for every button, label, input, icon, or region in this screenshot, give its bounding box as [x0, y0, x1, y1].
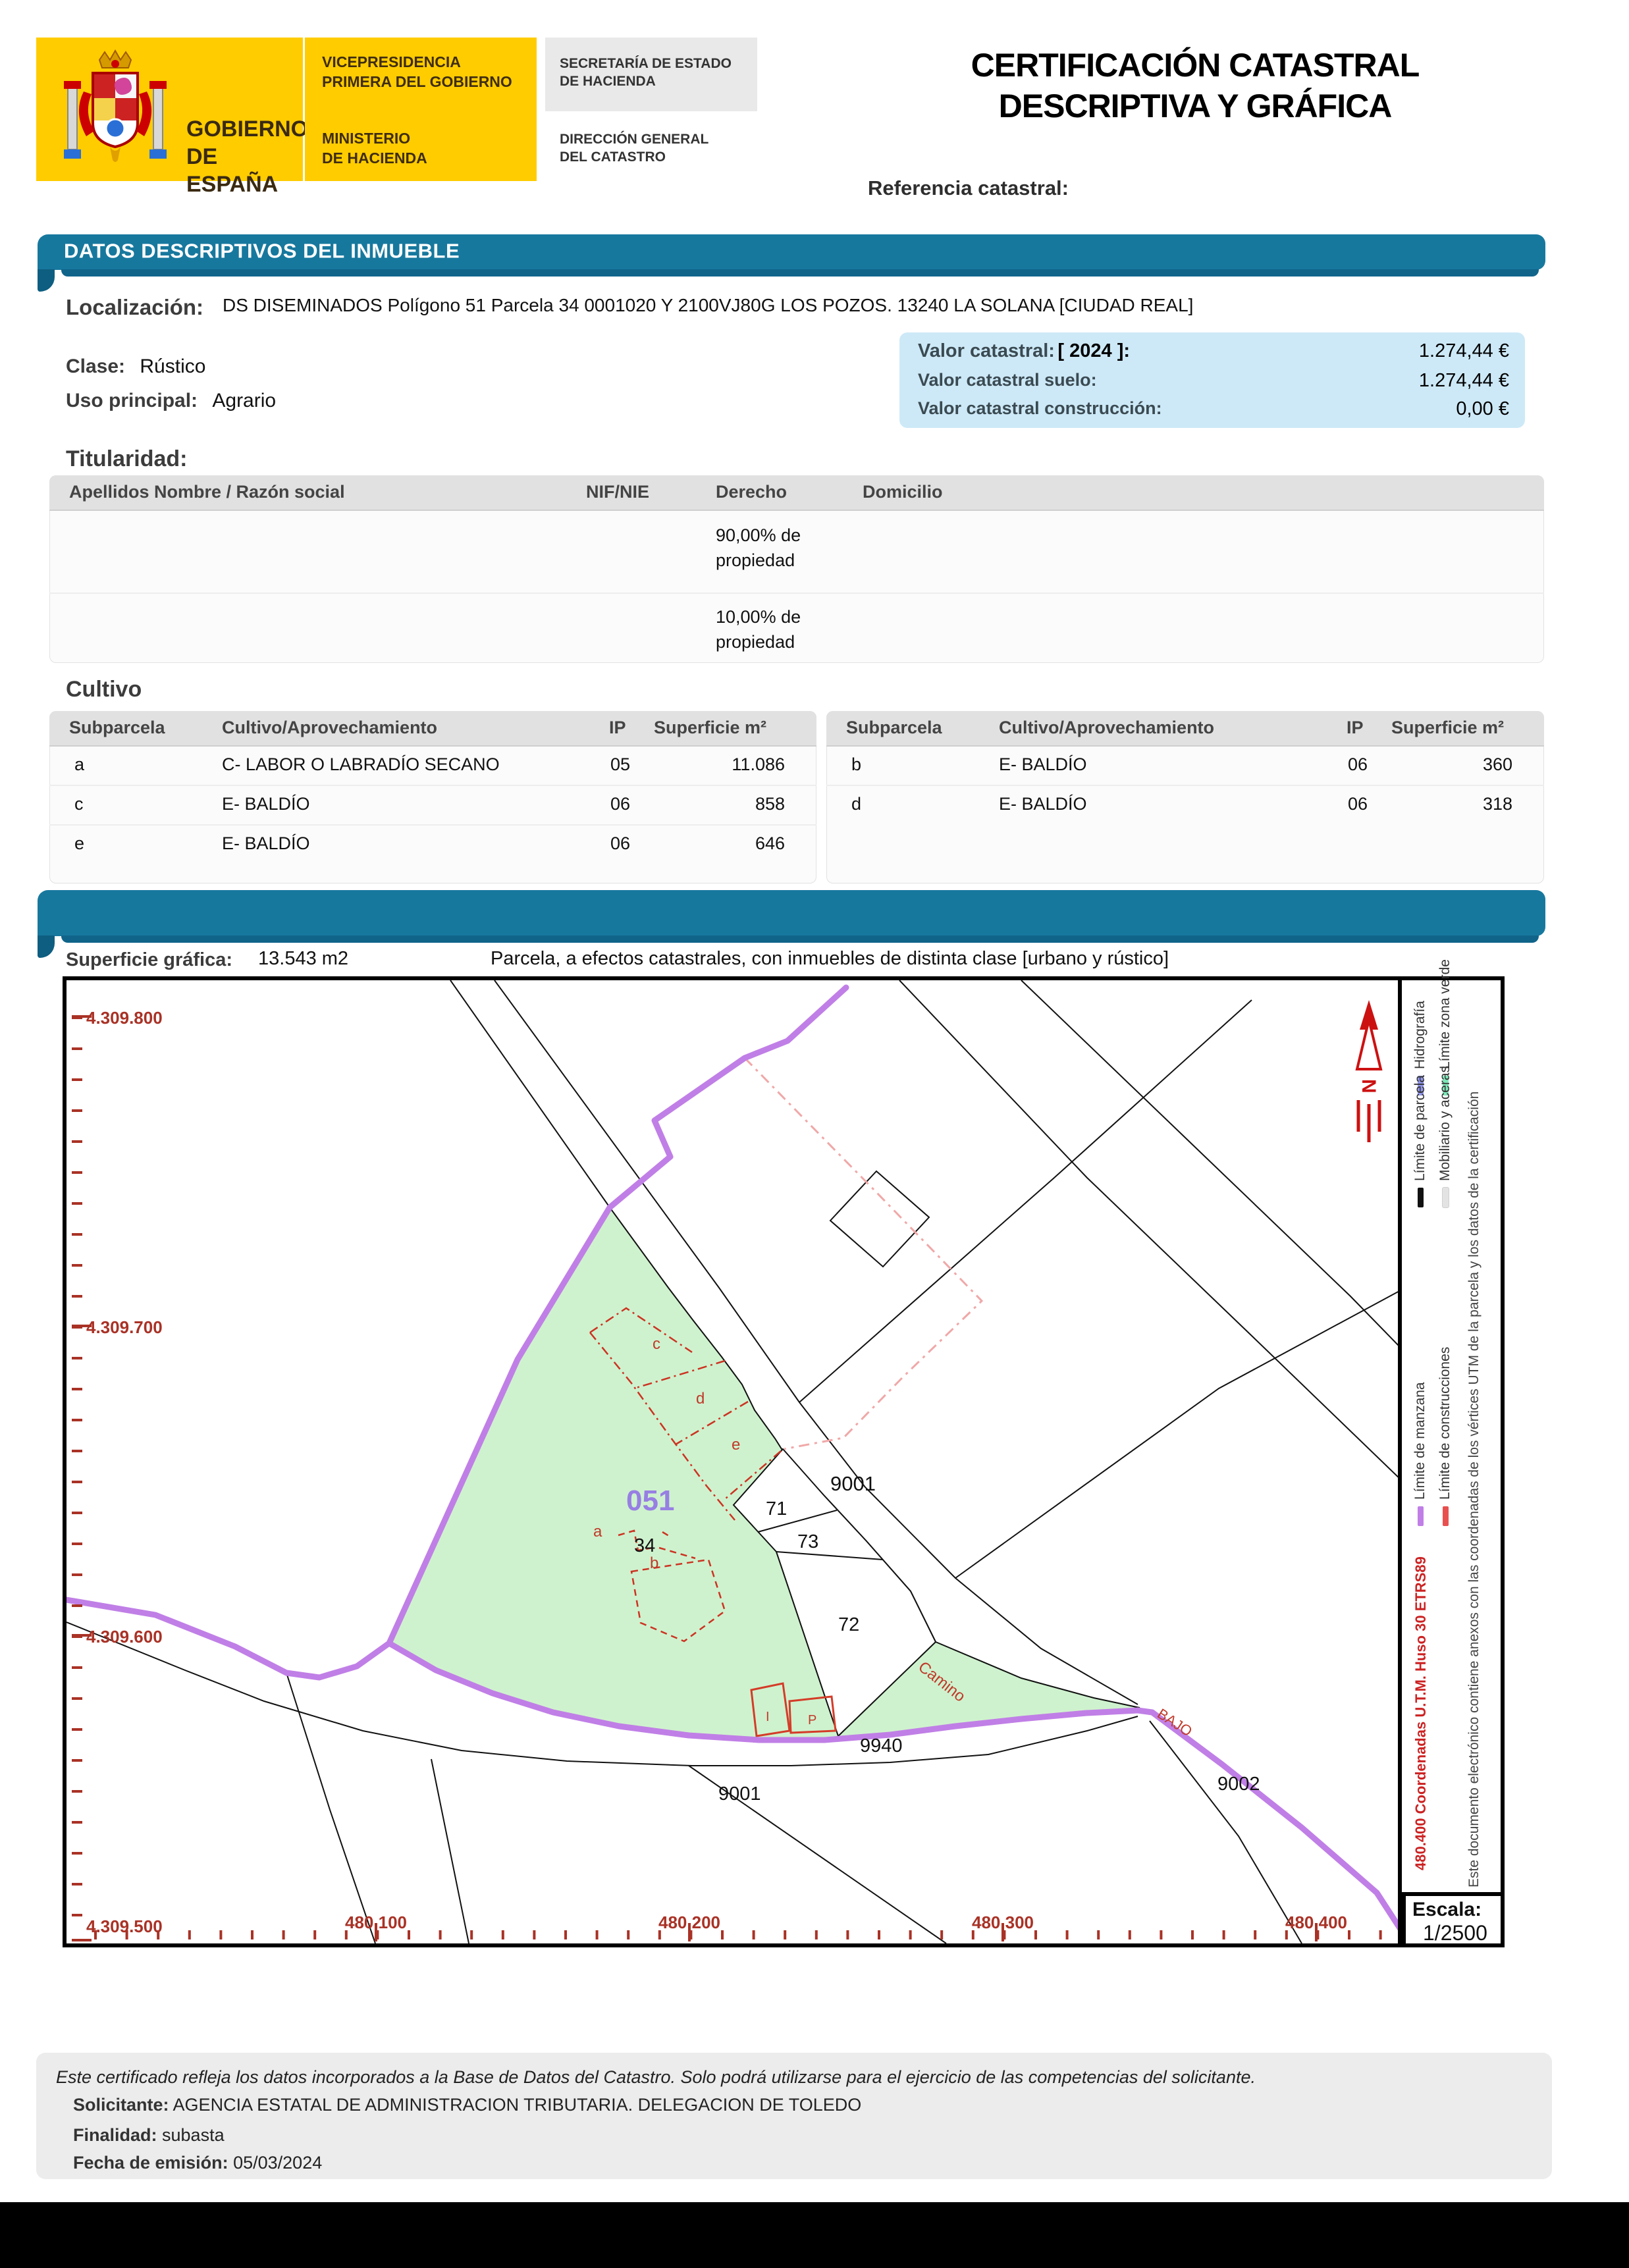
label-sub-d: d — [696, 1390, 705, 1408]
valor-value: 1.274,44 € — [1419, 340, 1509, 362]
mobiliario-swatch-icon — [1443, 1188, 1449, 1207]
label-constr-i: I — [766, 1710, 770, 1724]
col-cultivo-r: Cultivo/Aprovechamiento — [999, 718, 1214, 738]
titular-row2-derecho: 10,00% de propiedad — [716, 604, 801, 654]
secretaria-box: SECRETARÍA DE ESTADO DE HACIENDA — [545, 38, 757, 111]
col-subparcela-r: Subparcela — [846, 718, 942, 738]
legend-limite-construcciones: Límite de construcciones — [1437, 1347, 1453, 1526]
north-letter: N — [1358, 1079, 1379, 1094]
label-sub-e: e — [732, 1436, 740, 1454]
title-line2: DESCRIPTIVA Y GRÁFICA — [849, 86, 1541, 126]
legend-limite-parcela: Límite de parcela — [1412, 1075, 1428, 1207]
localizacion-value: DS DISEMINADOS Polígono 51 Parcela 34 00… — [223, 295, 1193, 316]
col-ip: IP — [609, 718, 626, 738]
zona-verde-label: Límite zona verde — [1437, 959, 1453, 1069]
gobierno-line2: DE ESPAÑA — [186, 143, 308, 198]
limite-construcciones-label: Límite de construcciones — [1437, 1347, 1453, 1500]
row1-derecho-l1: 90,00% de — [716, 523, 801, 548]
limite-parcela-swatch-icon — [1418, 1188, 1424, 1207]
certificate-page: GOBIERNO DE ESPAÑA VICEPRESIDENCIA PRIME… — [0, 0, 1629, 2268]
north-arrow-icon: N — [1357, 1000, 1381, 1142]
label-constr-p: P — [808, 1713, 816, 1727]
fecha-emision-label: Fecha de emisión: — [73, 2153, 228, 2173]
cadastral-map: 4.309.800 4.309.700 4.309.600 4.309.500 … — [63, 976, 1505, 1947]
x-label-480100: 480.100 — [345, 1912, 407, 1932]
c-r1-ip: 06 — [1348, 754, 1368, 775]
finalidad-value: subasta — [162, 2125, 225, 2145]
c-l1-cult: C- LABOR O LABRADÍO SECANO — [222, 754, 500, 775]
titularidad-table: Apellidos Nombre / Razón social NIF/NIE … — [49, 475, 1544, 663]
hidrografia-label: Hidrografía — [1412, 1001, 1428, 1069]
col-cultivo: Cultivo/Aprovechamiento — [222, 718, 437, 738]
datos-descriptivos-banner: DATOS DESCRIPTIVOS DEL INMUEBLE — [38, 234, 1545, 270]
label-72: 72 — [838, 1614, 859, 1635]
parcela-note: Parcela, a efectos catastrales, con inmu… — [491, 948, 1169, 970]
label-34: 34 — [634, 1535, 655, 1556]
clase-value: Rústico — [140, 356, 205, 377]
label-9001-bottom: 9001 — [718, 1783, 761, 1805]
c-l2-sup: 858 — [755, 794, 785, 814]
row2-derecho-l1: 10,00% de — [716, 604, 801, 629]
footer-finalidad: Finalidad: subasta — [73, 2125, 225, 2146]
superficie-grafica-label: Superficie gráfica: — [66, 949, 232, 971]
page-bottom-bar — [0, 2202, 1629, 2268]
col-superficie-r: Superficie m² — [1391, 718, 1504, 738]
limite-manzana-swatch-icon — [1418, 1506, 1424, 1526]
direccion-general-label: DIRECCIÓN GENERAL DEL CATASTRO — [560, 130, 708, 166]
y-label-4309600: 4.309.600 — [86, 1627, 163, 1647]
gobierno-line1: GOBIERNO — [186, 115, 308, 143]
mobiliario-label: Mobiliario y aceras — [1437, 1066, 1453, 1181]
finalidad-label: Finalidad: — [73, 2125, 157, 2145]
min-line2: DE HACIENDA — [322, 148, 427, 168]
spain-coat-of-arms-icon — [49, 47, 181, 172]
uso-principal-label: Uso principal: — [66, 390, 198, 411]
y-label-4309700: 4.309.700 — [86, 1317, 163, 1337]
col-nif: NIF/NIE — [586, 482, 649, 502]
ministerio-box: VICEPRESIDENCIA PRIMERA DEL GOBIERNO MIN… — [305, 38, 537, 181]
label-9940: 9940 — [860, 1735, 903, 1756]
vice-line1: VICEPRESIDENCIA — [322, 52, 512, 72]
c-l1-sup: 11.086 — [732, 754, 785, 775]
label-sub-b: b — [650, 1554, 658, 1572]
valor-row-3: Valor catastral construcción: 0,00 € — [918, 398, 1509, 419]
c-l2-sub: c — [74, 794, 84, 814]
c-r1-cult: E- BALDÍO — [999, 754, 1087, 775]
x-label-480300: 480.300 — [972, 1912, 1034, 1932]
c-l3-ip: 06 — [610, 833, 630, 854]
footer-solicitante: Solicitante: AGENCIA ESTATAL DE ADMINIST… — [73, 2095, 861, 2115]
sec-line2: DE HACIENDA — [560, 72, 732, 90]
titular-row1-derecho: 90,00% de propiedad — [716, 523, 801, 573]
valor-construccion-value: 0,00 € — [1456, 398, 1509, 420]
fecha-emision-value: 05/03/2024 — [233, 2153, 322, 2173]
vicepresidencia-label: VICEPRESIDENCIA PRIMERA DEL GOBIERNO — [322, 52, 512, 92]
gobierno-logo-box: GOBIERNO DE ESPAÑA — [36, 38, 303, 181]
limite-construcciones-swatch-icon — [1443, 1506, 1449, 1526]
row2-derecho-l2: propiedad — [716, 629, 801, 654]
solicitante-label: Solicitante: — [73, 2095, 169, 2115]
c-l3-cult: E- BALDÍO — [222, 833, 310, 854]
c-r2-ip: 06 — [1348, 794, 1368, 814]
certification-limit-line — [745, 1058, 982, 1449]
min-line1: MINISTERIO — [322, 128, 427, 148]
label-71: 71 — [766, 1498, 787, 1519]
referencia-catastral-label: Referencia catastral: — [868, 176, 1069, 200]
gobierno-title: GOBIERNO DE ESPAÑA — [186, 115, 308, 198]
limite-manzana-label: Límite de manzana — [1412, 1382, 1428, 1500]
valor-row-2: Valor catastral suelo: 1.274,44 € — [918, 370, 1509, 390]
solicitante-value: AGENCIA ESTATAL DE ADMINISTRACION TRIBUT… — [173, 2095, 862, 2115]
c-l2-cult: E- BALDÍO — [222, 794, 310, 814]
footer-disclaimer: Este certificado refleja los datos incor… — [56, 2067, 1256, 2088]
titularidad-heading: Titularidad: — [66, 446, 188, 472]
localizacion-label: Localización: — [66, 295, 203, 320]
map-drawing: 4.309.800 4.309.700 4.309.600 4.309.500 … — [67, 980, 1402, 1943]
title-line1: CERTIFICACIÓN CATASTRAL — [849, 45, 1541, 86]
dg-line1: DIRECCIÓN GENERAL — [560, 130, 708, 148]
c-r2-sub: d — [851, 794, 861, 814]
cultivo-table-left: Subparcela Cultivo/Aprovechamiento IP Su… — [49, 711, 816, 883]
c-l2-ip: 06 — [610, 794, 630, 814]
x-label-480400: 480.400 — [1285, 1912, 1347, 1932]
cultivo-right-header: Subparcela Cultivo/Aprovechamiento IP Su… — [826, 711, 1544, 747]
legend-limite-manzana: Límite de manzana — [1412, 1382, 1428, 1526]
superficie-grafica-value: 13.543 m2 — [258, 948, 348, 970]
ministerio-label: MINISTERIO DE HACIENDA — [322, 128, 427, 168]
col-subparcela: Subparcela — [69, 718, 165, 738]
c-l1-sub: a — [74, 754, 84, 775]
c-r2-sup: 318 — [1483, 794, 1512, 814]
legend-cert-text: Este documento electrónico contiene anex… — [1466, 1092, 1482, 1887]
map-legend: Hidrografía Límite zona verde Límite de … — [1398, 980, 1501, 1943]
legend-utm-coords-text: 480.400 Coordenadas U.T.M. Huso 30 ETRS8… — [1412, 1556, 1429, 1870]
label-73: 73 — [797, 1531, 818, 1552]
col-derecho: Derecho — [716, 482, 787, 502]
sec-line1: SECRETARÍA DE ESTADO — [560, 55, 732, 72]
banner-text: DATOS DESCRIPTIVOS DEL INMUEBLE — [64, 240, 460, 263]
cultivo-heading: Cultivo — [66, 677, 142, 702]
col-superficie: Superficie m² — [654, 718, 766, 738]
limite-parcela-label: Límite de parcela — [1412, 1075, 1428, 1181]
c-l3-sup: 646 — [755, 833, 785, 854]
escala-label: Escala: — [1412, 1899, 1501, 1921]
c-r1-sub: b — [851, 754, 861, 775]
label-9001-top: 9001 — [830, 1472, 876, 1495]
valor-suelo-label: Valor catastral suelo: — [918, 370, 1097, 390]
titularidad-header: Apellidos Nombre / Razón social NIF/NIE … — [49, 475, 1544, 511]
label-9002: 9002 — [1217, 1774, 1260, 1795]
footer-fecha: Fecha de emisión: 05/03/2024 — [73, 2153, 322, 2173]
cultivo-left-header: Subparcela Cultivo/Aprovechamiento IP Su… — [49, 711, 816, 747]
uso-principal-value: Agrario — [212, 390, 276, 411]
c-l1-ip: 05 — [610, 754, 630, 775]
valor-label: Valor catastral: — [918, 340, 1055, 361]
c-r1-sup: 360 — [1483, 754, 1512, 775]
col-ip-r: IP — [1347, 718, 1364, 738]
c-r2-cult: E- BALDÍO — [999, 794, 1087, 814]
valor-row-1: Valor catastral: [ 2024 ]: 1.274,44 € — [918, 340, 1509, 362]
uso-row: Uso principal: Agrario — [66, 390, 276, 412]
valor-catastral-box: Valor catastral: [ 2024 ]: 1.274,44 € Va… — [899, 332, 1525, 428]
legend-mobiliario: Mobiliario y aceras — [1437, 1066, 1453, 1207]
label-manzana-051: 051 — [626, 1485, 674, 1517]
valor-suelo-value: 1.274,44 € — [1419, 370, 1509, 392]
c-l3-sub: e — [74, 833, 84, 854]
document-title: CERTIFICACIÓN CATASTRAL DESCRIPTIVA Y GR… — [849, 45, 1541, 126]
col-nombre: Apellidos Nombre / Razón social — [69, 482, 345, 502]
valor-construccion-label: Valor catastral construcción: — [918, 398, 1162, 418]
dg-line2: DEL CATASTRO — [560, 148, 708, 166]
row1-derecho-l2: propiedad — [716, 548, 801, 573]
label-sub-c: c — [653, 1335, 660, 1353]
valor-year: [ 2024 ]: — [1057, 340, 1130, 361]
clase-label: Clase: — [66, 356, 125, 377]
footer-box: Este certificado refleja los datos incor… — [36, 2053, 1552, 2179]
y-label-4309800: 4.309.800 — [86, 1008, 163, 1028]
escala-box: Escala: 1/2500 — [1402, 1892, 1501, 1943]
y-label-4309500: 4.309.500 — [86, 1916, 163, 1936]
cultivo-table-right: Subparcela Cultivo/Aprovechamiento IP Su… — [826, 711, 1544, 883]
grafica-banner — [38, 890, 1545, 936]
label-sub-a: a — [593, 1523, 602, 1541]
col-domicilio: Domicilio — [863, 482, 943, 502]
vice-line2: PRIMERA DEL GOBIERNO — [322, 72, 512, 92]
clase-row: Clase: Rústico — [66, 356, 205, 378]
escala-value: 1/2500 — [1423, 1921, 1501, 1945]
x-label-480200: 480.200 — [658, 1912, 720, 1932]
